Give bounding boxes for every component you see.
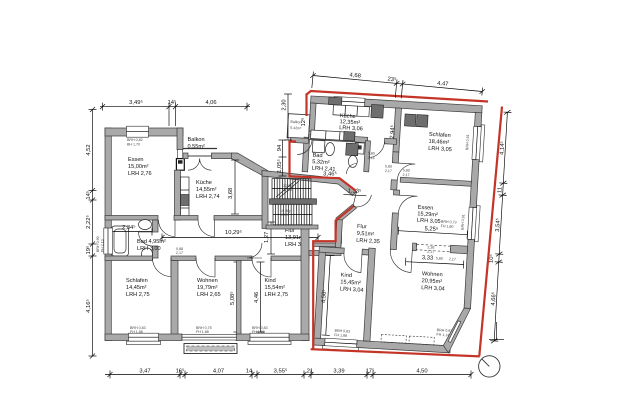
svg-text:3,49⁵: 3,49⁵	[129, 99, 143, 106]
svg-text:LRH 2,75: LRH 2,75	[126, 292, 150, 298]
svg-text:Schlafen: Schlafen	[429, 132, 451, 139]
svg-text:17⁵: 17⁵	[366, 368, 375, 375]
svg-text:2,94⁵: 2,94⁵	[389, 124, 397, 139]
svg-text:3,47: 3,47	[139, 369, 150, 375]
svg-text:3,68: 3,68	[228, 188, 234, 199]
svg-text:17/29: 17/29	[283, 188, 292, 192]
svg-text:1,05⁵: 1,05⁵	[276, 159, 283, 173]
svg-text:Küche: Küche	[196, 180, 212, 186]
svg-text:14⁵: 14⁵	[85, 190, 92, 199]
svg-text:LRH 2,65: LRH 2,65	[197, 292, 221, 298]
svg-text:19⁵: 19⁵	[85, 245, 92, 254]
svg-text:2,17: 2,17	[176, 251, 183, 255]
svg-text:2,17: 2,17	[427, 250, 434, 254]
svg-text:LRH 2,76: LRH 2,76	[128, 171, 152, 177]
svg-text:9,51m²: 9,51m²	[356, 231, 374, 238]
svg-text:12⁵: 12⁵	[300, 117, 307, 126]
svg-text:FH 1,88: FH 1,88	[130, 330, 143, 334]
svg-text:Schlafen: Schlafen	[126, 278, 148, 284]
svg-text:94: 94	[277, 144, 283, 151]
svg-text:17/29: 17/29	[280, 213, 289, 217]
svg-text:Kind: Kind	[265, 278, 276, 284]
svg-text:BH 1,70: BH 1,70	[127, 143, 140, 147]
svg-text:Balkon: Balkon	[290, 120, 301, 125]
svg-text:4,07: 4,07	[213, 369, 224, 375]
svg-text:LRH 3,00: LRH 3,00	[137, 246, 161, 252]
svg-text:19,79m²: 19,79m²	[197, 285, 218, 291]
svg-text:14,45m²: 14,45m²	[126, 285, 147, 291]
svg-text:4,66⁵: 4,66⁵	[490, 291, 498, 306]
svg-text:FH 2,13: FH 2,13	[101, 239, 105, 252]
svg-text:23⁵: 23⁵	[387, 76, 397, 84]
svg-text:4,16⁵: 4,16⁵	[85, 299, 92, 313]
svg-text:4,56⁵: 4,56⁵	[320, 289, 328, 304]
svg-text:Kind: Kind	[341, 272, 353, 279]
svg-text:3,33: 3,33	[422, 255, 434, 262]
svg-text:4,50: 4,50	[416, 369, 427, 375]
svg-text:14: 14	[246, 369, 253, 375]
svg-text:4,46: 4,46	[254, 292, 260, 303]
svg-text:2,17: 2,17	[449, 257, 456, 261]
svg-text:5,08⁵: 5,08⁵	[229, 291, 236, 305]
svg-text:16⁵: 16⁵	[176, 368, 185, 375]
svg-text:4,68: 4,68	[349, 72, 361, 79]
svg-text:2,17: 2,17	[402, 173, 409, 177]
svg-text:LRH 2,74: LRH 2,74	[196, 194, 220, 200]
svg-text:15,54m²: 15,54m²	[265, 285, 286, 291]
svg-text:3,39: 3,39	[333, 369, 344, 375]
svg-text:FH 1,88: FH 1,88	[334, 333, 347, 338]
svg-text:BRH 0,90: BRH 0,90	[96, 236, 100, 252]
svg-text:Essen: Essen	[128, 157, 144, 163]
svg-text:4,47: 4,47	[437, 81, 449, 88]
svg-text:20,95m²: 20,95m²	[421, 278, 442, 285]
svg-text:11: 11	[497, 187, 503, 193]
svg-text:2,14: 2,14	[367, 156, 374, 160]
svg-text:3,54⁵: 3,54⁵	[494, 217, 502, 232]
svg-text:2,22⁵: 2,22⁵	[85, 215, 92, 229]
svg-text:3,46⁵: 3,46⁵	[323, 170, 337, 177]
svg-text:15,00m²: 15,00m²	[128, 164, 149, 170]
svg-text:1,27: 1,27	[264, 232, 270, 243]
svg-text:10,29⁵: 10,29⁵	[225, 229, 243, 236]
svg-text:14⁵: 14⁵	[168, 99, 177, 106]
svg-text:15,45m²: 15,45m²	[340, 279, 361, 286]
svg-text:Wohnen: Wohnen	[422, 271, 443, 278]
svg-text:21: 21	[307, 369, 313, 375]
svg-text:Bad: Bad	[312, 153, 322, 160]
svg-text:4,52: 4,52	[86, 144, 92, 155]
svg-text:2,30: 2,30	[282, 99, 288, 110]
svg-text:Balkon: Balkon	[188, 137, 205, 143]
svg-text:2,34⁵: 2,34⁵	[122, 224, 136, 231]
svg-text:FH 1,80: FH 1,80	[441, 224, 454, 229]
svg-text:3,55⁵: 3,55⁵	[274, 368, 288, 375]
svg-text:5,25⁵: 5,25⁵	[424, 225, 439, 233]
svg-text:FH 1,14: FH 1,14	[436, 333, 449, 338]
svg-text:Wohnen: Wohnen	[197, 278, 218, 284]
svg-text:18,46m²: 18,46m²	[428, 139, 449, 146]
svg-text:BRH 0,82: BRH 0,82	[127, 138, 143, 142]
svg-text:14,55m²: 14,55m²	[196, 187, 217, 193]
svg-text:5,80: 5,80	[436, 256, 443, 260]
svg-text:FH 1,88: FH 1,88	[196, 330, 209, 334]
svg-text:LRH 2,75: LRH 2,75	[265, 292, 289, 298]
svg-text:4,06: 4,06	[205, 100, 216, 106]
svg-text:FH 1,88: FH 1,88	[252, 330, 265, 334]
svg-text:2,17: 2,17	[385, 169, 392, 173]
svg-text:Flur: Flur	[357, 224, 367, 231]
